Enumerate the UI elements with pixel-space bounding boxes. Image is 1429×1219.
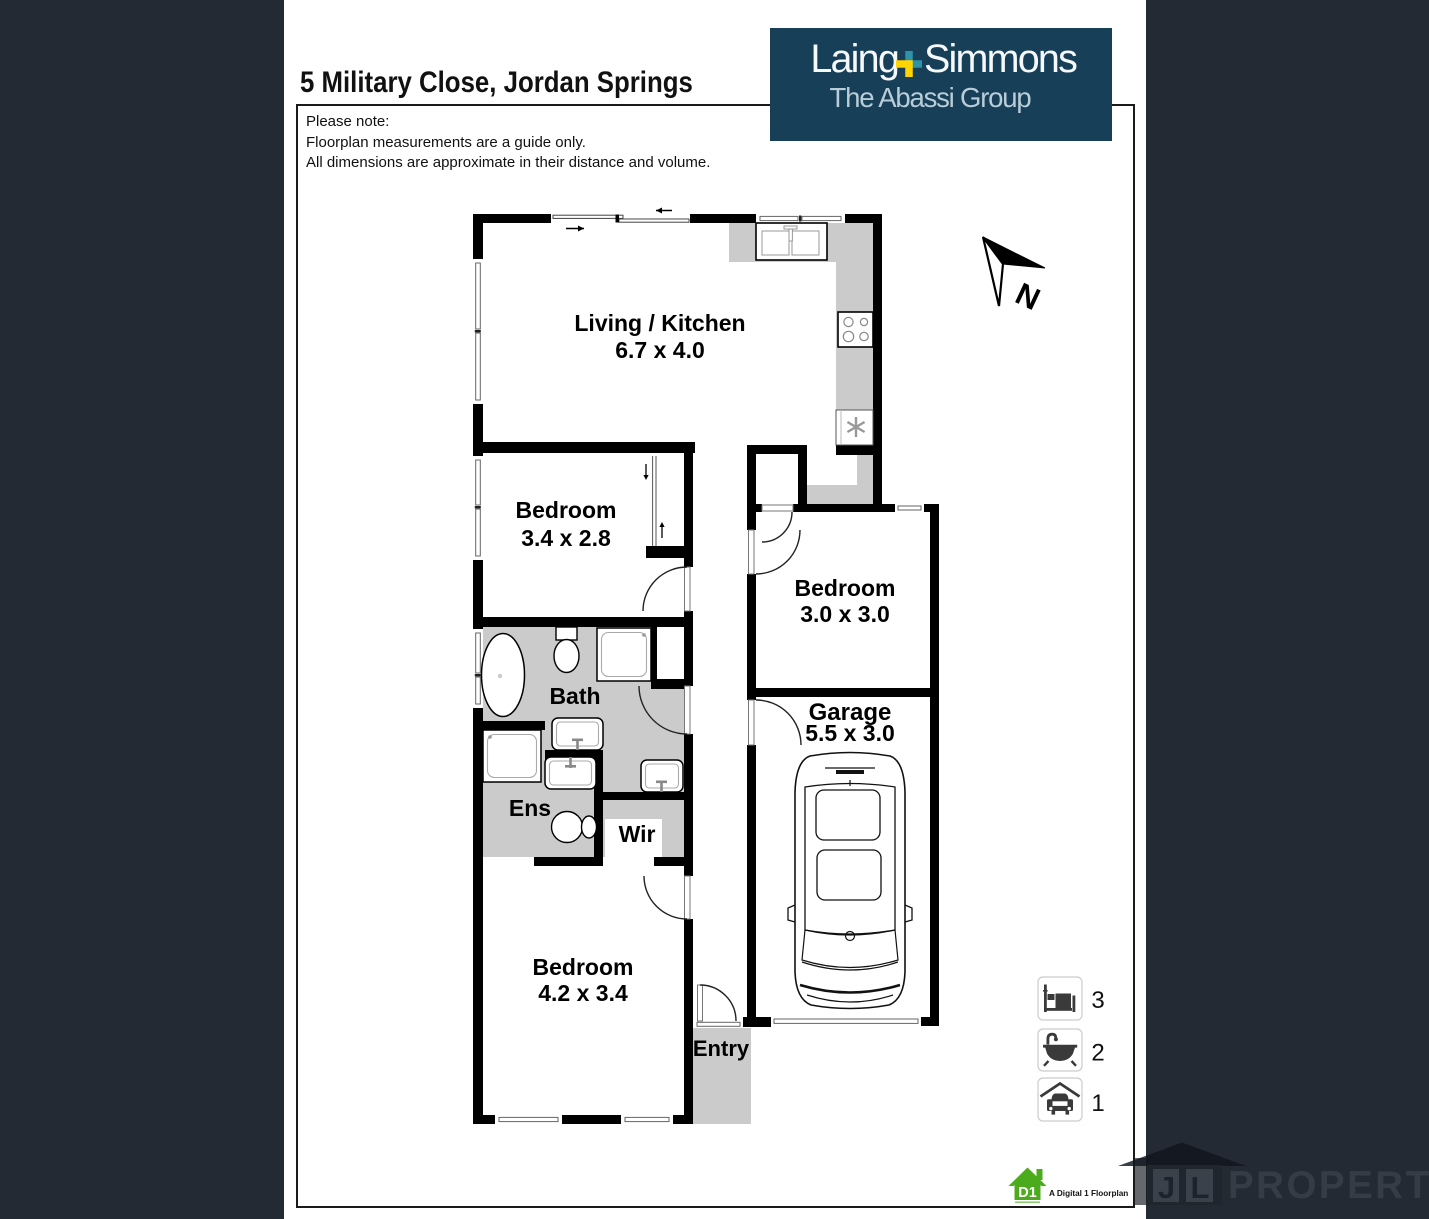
svg-text:3.4 x 2.8: 3.4 x 2.8 <box>521 525 611 551</box>
svg-text:Living / Kitchen: Living / Kitchen <box>574 310 745 336</box>
svg-text:Entry: Entry <box>693 1036 750 1061</box>
svg-text:N: N <box>1010 276 1045 317</box>
svg-text:Ens: Ens <box>509 795 551 821</box>
svg-text:Bedroom: Bedroom <box>795 575 896 601</box>
svg-text:Bath: Bath <box>549 683 600 709</box>
svg-text:2: 2 <box>1091 1040 1104 1067</box>
svg-text:D1: D1 <box>1018 1185 1037 1201</box>
svg-text:A Digital 1 Floorplan: A Digital 1 Floorplan <box>1049 1189 1128 1198</box>
svg-text:5.5 x 3.0: 5.5 x 3.0 <box>805 720 895 746</box>
svg-text:3.0 x 3.0: 3.0 x 3.0 <box>800 601 890 627</box>
svg-text:1: 1 <box>1091 1090 1104 1117</box>
svg-text:Bedroom: Bedroom <box>516 497 617 523</box>
svg-text:Bedroom: Bedroom <box>533 954 634 980</box>
svg-text:4.2 x 3.4: 4.2 x 3.4 <box>538 980 628 1006</box>
svg-text:6.7 x 4.0: 6.7 x 4.0 <box>615 337 705 363</box>
svg-text:PROPERTY: PROPERTY <box>1228 1164 1429 1207</box>
svg-text:J: J <box>1158 1170 1175 1205</box>
svg-text:L: L <box>1191 1170 1210 1205</box>
svg-text:Wir: Wir <box>619 821 656 847</box>
svg-text:3: 3 <box>1091 987 1104 1014</box>
